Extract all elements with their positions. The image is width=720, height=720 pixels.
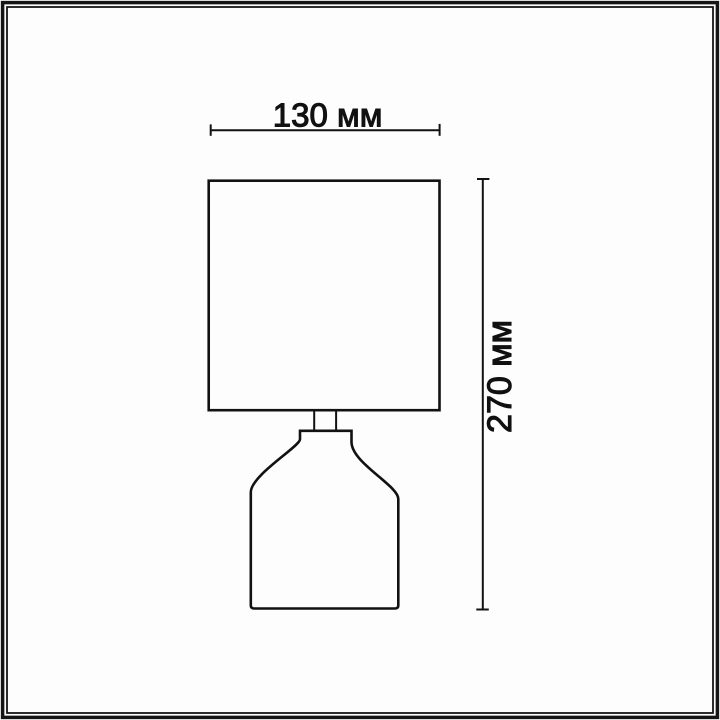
svg-text:270 мм: 270 мм [481, 320, 519, 433]
svg-text:130 мм: 130 мм [273, 96, 383, 133]
